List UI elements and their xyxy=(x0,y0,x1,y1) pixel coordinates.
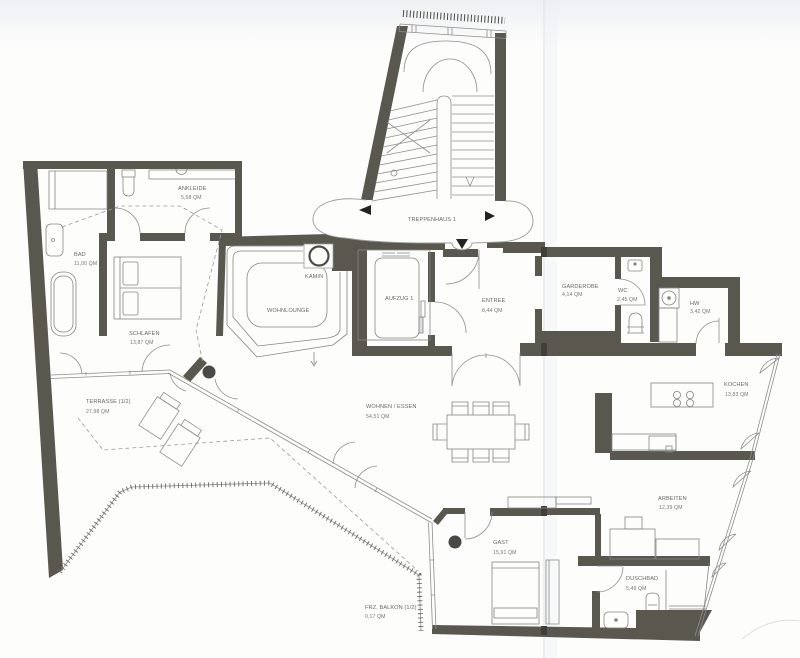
svg-text:FRZ. BALKON (1/2): FRZ. BALKON (1/2) xyxy=(365,605,416,611)
svg-text:8,44 QM: 8,44 QM xyxy=(482,308,503,314)
svg-text:WOHNLOUNGE: WOHNLOUNGE xyxy=(267,308,310,314)
svg-text:TERRASSE (1/2): TERRASSE (1/2) xyxy=(86,399,131,405)
svg-text:GAST: GAST xyxy=(493,540,509,546)
svg-text:5,49 QM: 5,49 QM xyxy=(626,586,647,592)
svg-text:KOCHEN: KOCHEN xyxy=(724,382,749,388)
svg-text:3,42 QM: 3,42 QM xyxy=(690,309,711,315)
svg-text:ANKLEIDE: ANKLEIDE xyxy=(178,186,207,192)
svg-text:4,14 QM: 4,14 QM xyxy=(562,292,583,298)
svg-text:WC: WC xyxy=(618,288,628,294)
svg-text:DUSCHBAD: DUSCHBAD xyxy=(626,576,658,582)
svg-text:54,51 QM: 54,51 QM xyxy=(366,414,390,420)
svg-text:13,87 QM: 13,87 QM xyxy=(130,340,154,346)
svg-text:12,39 QM: 12,39 QM xyxy=(659,505,683,511)
svg-text:KAMIN: KAMIN xyxy=(305,274,323,280)
svg-text:13,83 QM: 13,83 QM xyxy=(725,392,749,398)
svg-text:11,00 QM: 11,00 QM xyxy=(74,261,97,267)
svg-text:ENTREE: ENTREE xyxy=(482,298,505,304)
svg-text:27,98 QM: 27,98 QM xyxy=(86,409,110,415)
svg-text:WOHNEN / ESSEN: WOHNEN / ESSEN xyxy=(366,404,417,410)
svg-text:0,17 QM: 0,17 QM xyxy=(365,614,386,620)
svg-text:HW: HW xyxy=(690,301,700,307)
svg-text:GARDEROBE: GARDEROBE xyxy=(562,284,599,290)
svg-text:BAD: BAD xyxy=(74,252,86,258)
svg-text:ARBEITEN: ARBEITEN xyxy=(658,496,687,502)
svg-text:TREPPENHAUS 1: TREPPENHAUS 1 xyxy=(408,217,456,223)
svg-text:2,45 QM: 2,45 QM xyxy=(617,297,638,303)
svg-text:15,91 QM: 15,91 QM xyxy=(493,550,517,556)
svg-text:AUFZUG 1: AUFZUG 1 xyxy=(385,296,413,302)
svg-text:SCHLAFEN: SCHLAFEN xyxy=(129,331,160,337)
svg-text:5,58 QM: 5,58 QM xyxy=(181,195,202,201)
